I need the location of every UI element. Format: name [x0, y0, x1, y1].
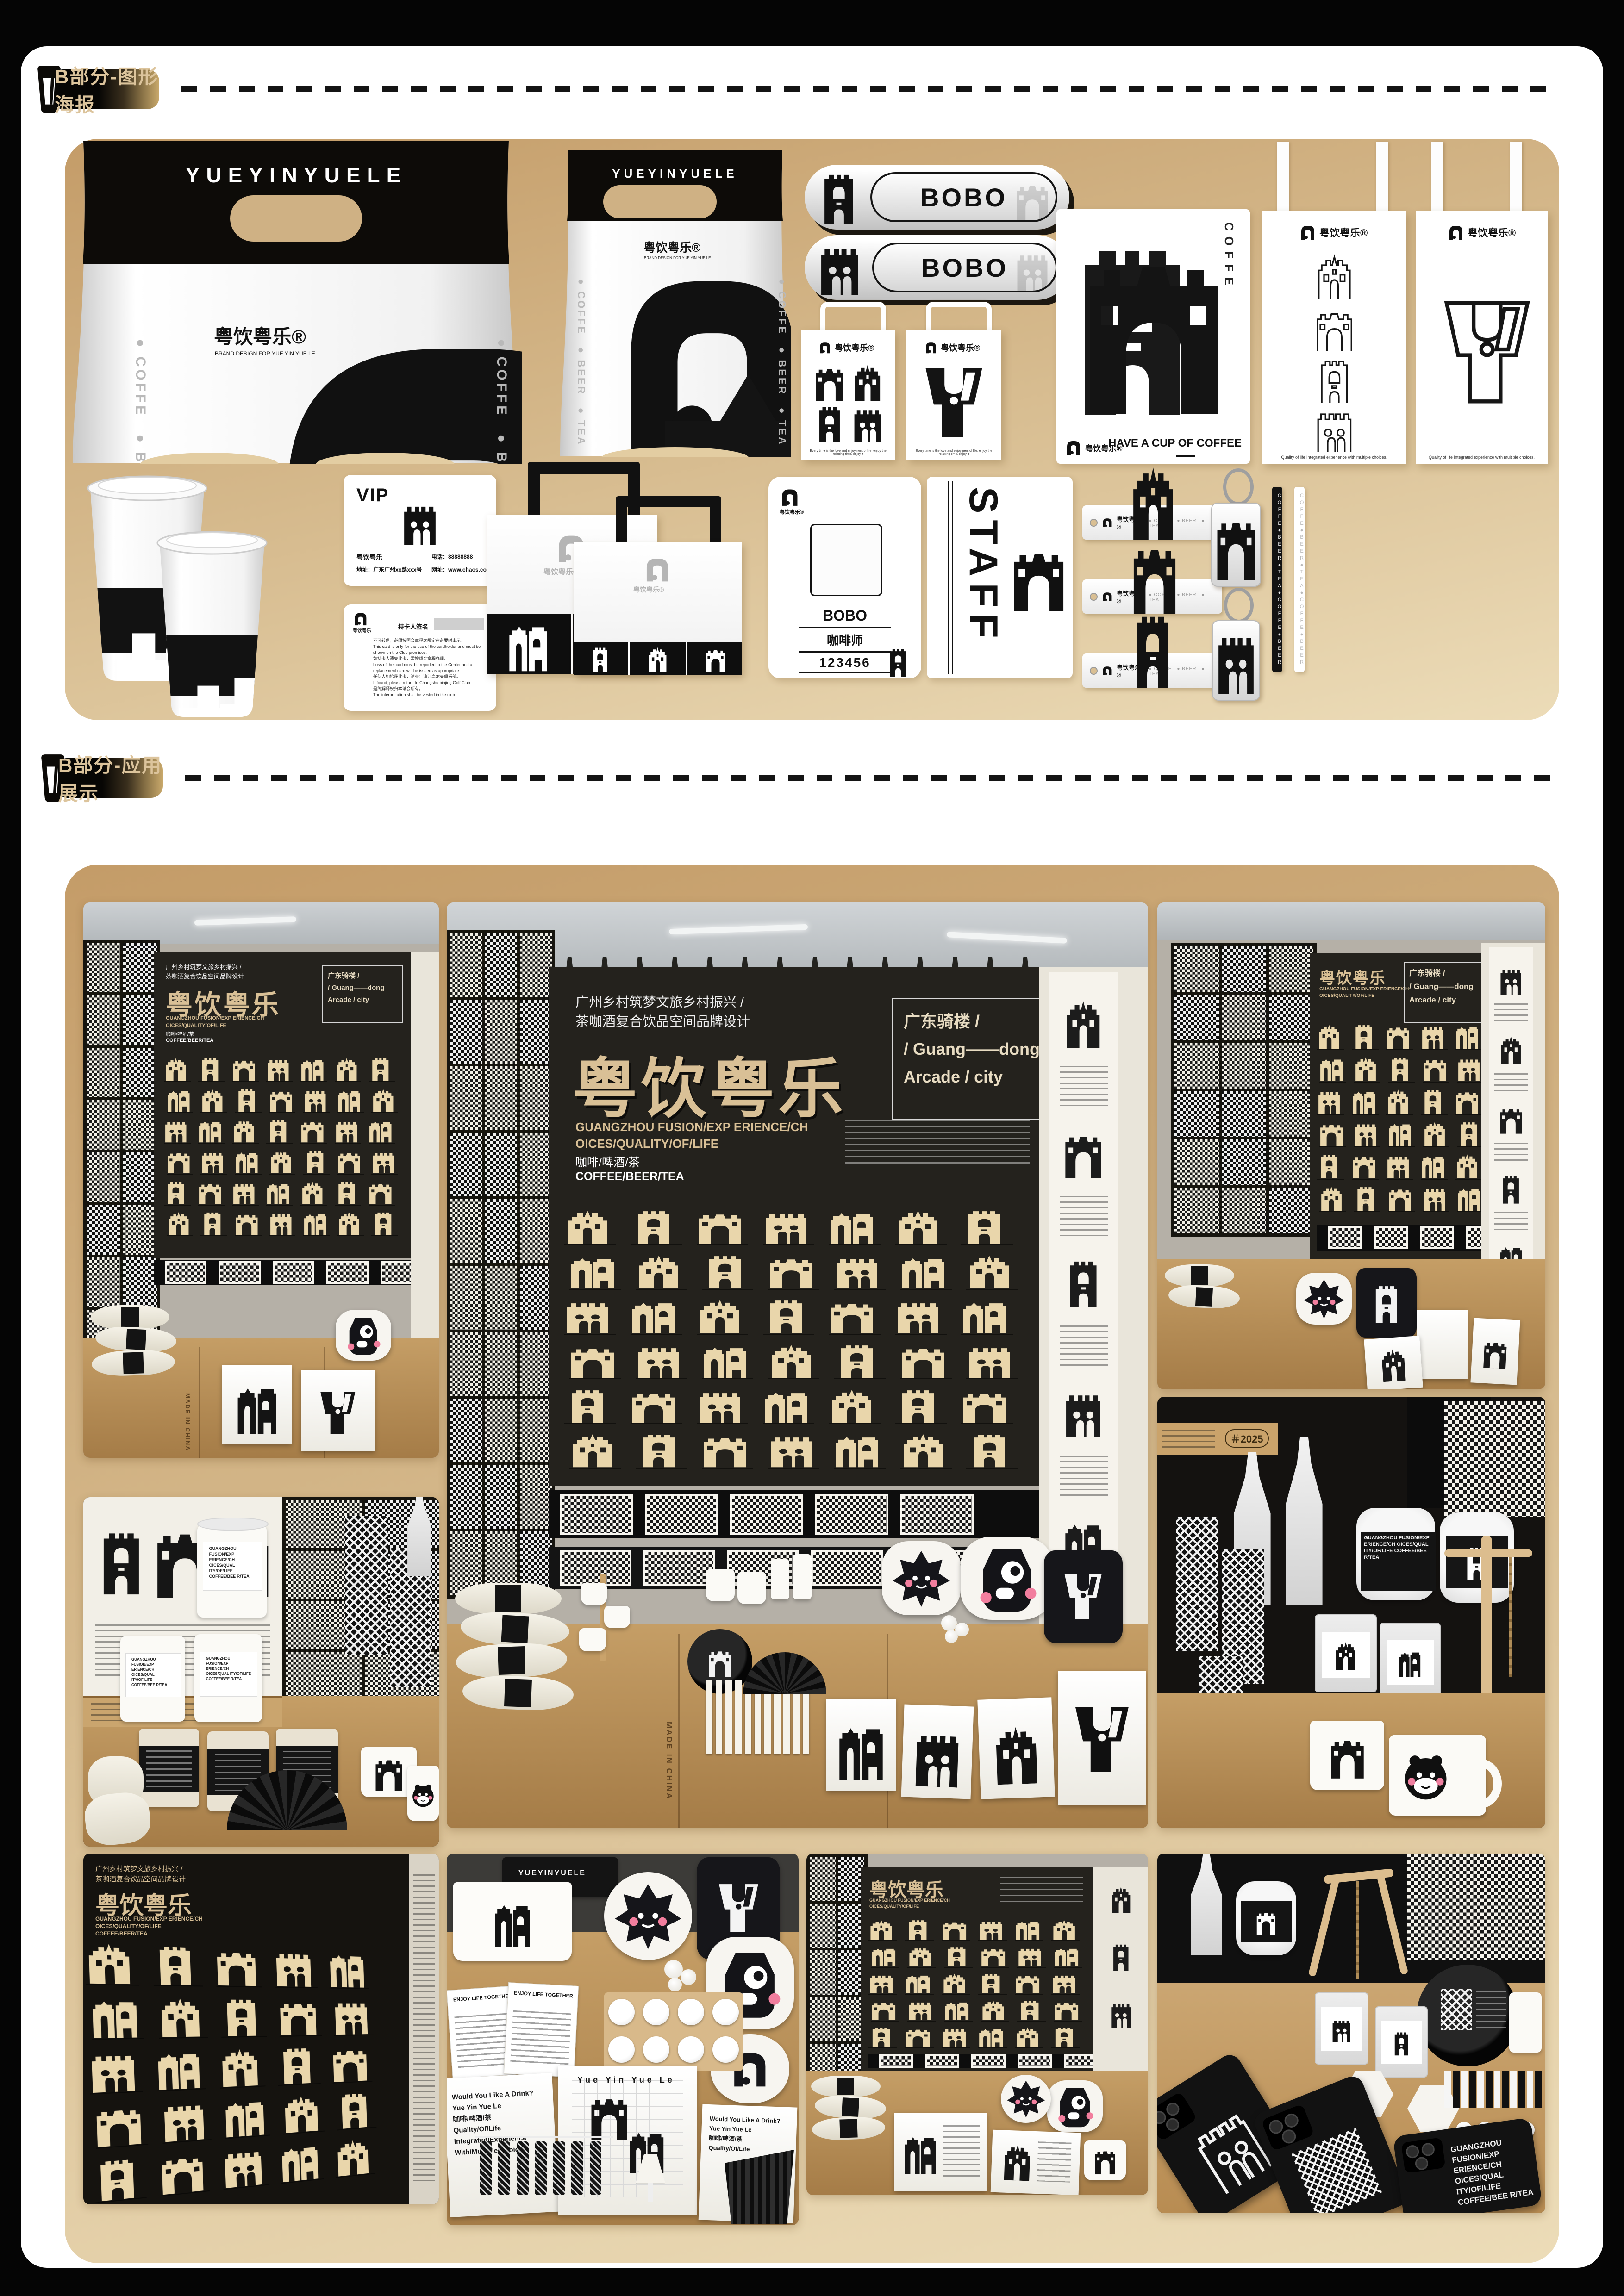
- straw-black: COFFE●BEER●TEA●COFFE●BEER: [1272, 487, 1282, 672]
- photo-booth-angle: 粤饮粤乐 GUANGZHOU FUSION/EXP ERIENCE/CH OIC…: [1157, 902, 1545, 1389]
- idcard-building-icon: [885, 646, 911, 677]
- carrier1-drinks-right: ● COFFE ● BEER ● TEA: [494, 339, 509, 464]
- wristband1-building: [1130, 461, 1177, 540]
- wristband1-logo-icon: [1102, 517, 1112, 528]
- phI-plate-lattice: [1441, 1989, 1472, 2030]
- coffee-card-underline: [1176, 455, 1195, 457]
- phC-cup1: [706, 1569, 735, 1601]
- photo-bottles-mugs: ＃2025 GUANGZHOU FUSION/EXP ERIENCE/CH OI…: [1157, 1397, 1545, 1828]
- phH-s3b: [839, 2119, 857, 2138]
- coffee-card-vline: [1230, 297, 1230, 413]
- phI-jar1: [1315, 1992, 1368, 2065]
- toteB-band-gap2: [686, 642, 687, 675]
- phD-pillow2: [1356, 1268, 1417, 1338]
- vip-term-7: 最终解释权归本球会所有。: [373, 686, 487, 692]
- phI-glyph-poster: [1407, 1854, 1545, 1960]
- phA-tote2: [301, 1370, 375, 1451]
- phB-cup-top-lid: [197, 1518, 269, 1531]
- phA-slipper2-band: [125, 1329, 146, 1350]
- phC-pillow1: [882, 1541, 961, 1615]
- vip-title: VIP: [356, 485, 389, 506]
- phE-kraft-tag: ＃2025: [1157, 1423, 1278, 1455]
- phI-bottle: [1185, 1854, 1228, 1955]
- bag1-stamp-1: [813, 362, 846, 401]
- vip-website: 网址：www.chaos.com: [431, 566, 492, 573]
- phD-slipper1: [1165, 1264, 1234, 1287]
- name-badge-pill-2: BOBO: [805, 235, 1069, 300]
- phD-banner-b1: [1497, 964, 1525, 995]
- staff-building-icon: [1011, 541, 1067, 611]
- phE-mug-bear: [1389, 1735, 1486, 1816]
- carrier2-drinks-right: ● COFFE ● BEER ● TEA: [776, 279, 788, 446]
- idcard-logo-text: 粤饮粤乐®: [780, 508, 804, 516]
- phH-f-b2: [1108, 1942, 1134, 1971]
- phC-banner-b3: [1064, 1253, 1103, 1311]
- bag4-handle-right: [1510, 142, 1522, 212]
- bag2-caption: Every time is the love and enjoyment of …: [911, 449, 997, 456]
- phA-title2: 茶咖酒复合饮品空间品牌设计: [166, 971, 244, 980]
- vip-term-5: 任何人如拾获此卡，请交：滨江高尔夫俱乐部。: [373, 674, 487, 680]
- phE-jar2: [1380, 1623, 1441, 1699]
- phA-slipper1-band: [121, 1307, 140, 1327]
- phC-mug1: [581, 1583, 607, 1605]
- bag3-stamp-2: [1312, 303, 1353, 351]
- phB-cup-mid1-sleeve: GUANGZHOU FUSION/EXP ERIENCE/CH OICES/QU…: [125, 1653, 181, 1697]
- phA-madein: MADE IN CHINA: [184, 1393, 191, 1451]
- phC-toteP1-print: [837, 1719, 885, 1780]
- phC-banner-t3: [1060, 1325, 1108, 1369]
- pill1-watermark: [1014, 178, 1051, 222]
- phB-cup-top-sleeve: GUANGZHOU FUSION/EXP ERIENCE/CH OICES/QU…: [203, 1542, 262, 1591]
- phC-poster-wall: [447, 930, 555, 1599]
- tote-bag-small: 粤饮粤乐®: [574, 542, 742, 675]
- phH-pillow1-face: [1053, 2084, 1097, 2128]
- phI-rack-leg2: [1377, 1874, 1409, 1975]
- phF-side-posters: [409, 1854, 439, 2204]
- keychain-2: [1212, 620, 1260, 701]
- dashed-rule-bottom: [185, 775, 1555, 781]
- phD-banner-b2: [1497, 1034, 1525, 1064]
- bag4-logo-text: 粤饮粤乐®: [1468, 225, 1516, 240]
- phC-plate-print: [707, 1646, 733, 1677]
- idcard-name: BOBO: [799, 607, 891, 628]
- phC-logotype: 粤饮粤乐: [573, 1037, 847, 1130]
- bag2-logo-icon: [925, 342, 937, 354]
- wristband2-hole: [1090, 593, 1098, 601]
- phC-toteP3: [977, 1697, 1055, 1799]
- phB-mug-bear-print: [409, 1777, 437, 1813]
- phC-toteY: [1058, 1671, 1146, 1805]
- bag1-stamp-4: [851, 404, 884, 442]
- phI-case3-cam: [1401, 2137, 1445, 2173]
- phI-case2-print: [1292, 2128, 1382, 2213]
- phI-jar2: [1375, 2006, 1428, 2078]
- phH-towel1: [894, 2113, 987, 2191]
- bag1-logo-text: 粤饮粤乐®: [835, 342, 874, 354]
- phH-mug: [1084, 2140, 1126, 2180]
- coffee-poster-card: COFFE 粤饮粤乐® HAVE A CUP OF COFFEE: [1056, 209, 1250, 464]
- bag3-caption: Quality of life Integrated experience wi…: [1268, 455, 1401, 460]
- idcard-role: 咖啡师: [799, 631, 891, 653]
- phE-jar1-label: [1322, 1632, 1370, 1678]
- phB-cup-mid1-label: GUANGZHOU FUSION/EXP ERIENCE/CH OICES/QU…: [131, 1657, 175, 1693]
- bag1-logo-icon: [819, 342, 831, 354]
- phD-pillow1-face: [1302, 1277, 1346, 1320]
- phC-boxline1: [678, 1634, 680, 1828]
- phC-en2: OICES/QUALITY/OF/LIFE: [575, 1137, 718, 1151]
- phF-title2: 茶咖酒复合饮品空间品牌设计: [95, 1874, 186, 1884]
- phC-title1: 广州乡村筑梦文旅乡村振兴 /: [575, 991, 744, 1011]
- work-id-card: 粤饮粤乐® BOBO 咖啡师 123456: [768, 477, 921, 678]
- keychain1-building: [1216, 510, 1256, 580]
- phC-pillow3: [1044, 1550, 1123, 1643]
- phC-banner-t4: [1060, 1456, 1108, 1499]
- phC-s1b: [495, 1585, 521, 1612]
- phH-f-b3: [1108, 1999, 1134, 2028]
- phD-banner-b3: [1497, 1103, 1525, 1134]
- cup-carrier-large: YUEYINYUELE 粤饮粤乐® BRAND DESIGN FOR YUE Y…: [70, 140, 522, 464]
- photo-booth-overview: 粤饮粤乐 GUANGZHOU FUSION/EXP ERIENCE/CH OIC…: [806, 1854, 1148, 2195]
- phG-lamp: [632, 2154, 669, 2210]
- phG-vip-tag-rack: [475, 2131, 613, 2205]
- phC-banner-b1: [1064, 994, 1103, 1052]
- phE-mug-castle: [1310, 1721, 1384, 1790]
- vipback-logo-icon: [354, 612, 368, 626]
- phD-arcade-1: 广东骑楼 /: [1409, 966, 1483, 980]
- phB-bookmark1: [345, 1516, 388, 1655]
- phC-arcade-1: 广东骑楼 /: [904, 1008, 1043, 1035]
- pill1-building-icon: [817, 170, 861, 224]
- phA-ceiling: [83, 902, 439, 944]
- phI-rack-leg1: [1308, 1876, 1340, 1977]
- idcard-photo-window: [810, 524, 882, 596]
- phE-jar2-label: [1387, 1640, 1434, 1685]
- phB-cupB1: [139, 1729, 199, 1807]
- pill1-plate: BOBO: [870, 172, 1057, 222]
- toteB-band-2: [632, 642, 684, 675]
- phC-toteP1: [826, 1699, 896, 1791]
- bag4-logo: 粤饮粤乐®: [1448, 224, 1516, 240]
- phC-title2: 茶咖酒复合饮品空间品牌设计: [575, 1011, 750, 1030]
- carrier2-logo-sub: BRAND DESIGN FOR YUE YIN YUE LE: [644, 256, 711, 260]
- phG-cotton2: [681, 1969, 696, 1985]
- photo-booth-wide: 广州乡村筑梦文旅乡村振兴 / 茶咖酒复合饮品空间品牌设计 粤饮粤乐 GUANGZ…: [83, 902, 439, 1458]
- phA-woodgrid: [163, 1056, 402, 1241]
- phH-towel2: [991, 2130, 1081, 2195]
- phH-towel1-print: [904, 2124, 937, 2180]
- phC-cn-drinks: 咖啡/啤酒/茶: [575, 1153, 640, 1170]
- phD-arcade-box: 广东骑楼 / / Guang——dong Arcade / city: [1404, 962, 1489, 1023]
- phA-tote1: [222, 1365, 292, 1444]
- phH-woodgrid: [868, 1918, 1087, 2053]
- phC-cotton1: [941, 1615, 957, 1631]
- bag-outlined-y: 粤饮粤乐® Quality of life Integrated experie…: [1416, 211, 1548, 464]
- phE-bottle2: [1279, 1437, 1330, 1605]
- staff-line-2: [952, 481, 953, 674]
- phC-cup2: [737, 1572, 766, 1604]
- portfolio-board: B部分-图形海报 YUEYINYUELE 粤饮粤乐® BRAND DESIGN …: [0, 0, 1624, 2296]
- phC-madein: MADE IN CHINA: [664, 1722, 674, 1800]
- phB-mug-bear: [407, 1766, 439, 1821]
- phB-cup-mid2-label: GUANGZHOU FUSION/EXP ERIENCE/CH OICES/QU…: [206, 1656, 251, 1693]
- phC-candle2: [793, 1554, 812, 1599]
- phG-crossword-word: Yue Yin Yue Le: [577, 2075, 675, 2085]
- idcard-number: 123456: [799, 655, 891, 673]
- cup-small: [150, 532, 294, 720]
- phF-woodgrid: [83, 1940, 386, 2204]
- coffee-card-slogan: HAVE A CUP OF COFFEE: [1108, 437, 1242, 450]
- phG-pillow-star-face: [612, 1878, 684, 1954]
- phA-slipper3-band: [123, 1352, 144, 1374]
- phA-pillow-face: [342, 1315, 384, 1356]
- phG-lamp-shade: [636, 2154, 665, 2183]
- phG-notebook2-art: [510, 2010, 571, 2068]
- bag2-y-monogram: [920, 366, 987, 440]
- bag2-logo-text: 粤饮粤乐®: [941, 342, 980, 354]
- photo-woodwall-angle: 广州乡村筑梦文旅乡村振兴 / 茶咖酒复合饮品空间品牌设计 粤饮粤乐 GUANGZ…: [83, 1854, 439, 2204]
- cup-carrier-small: YUEYINYUELE 粤饮粤乐® BRAND DESIGN FOR YUE Y…: [559, 149, 791, 457]
- phB-cup-mid1: GUANGZHOU FUSION/EXP ERIENCE/CH OICES/QU…: [120, 1636, 185, 1722]
- toteB-logo-icon: [644, 556, 670, 582]
- phA-arcade-1: 广东骑楼 /: [328, 970, 397, 982]
- bag3-logo-text: 粤饮粤乐®: [1319, 225, 1368, 240]
- vip-terms: 不可转借，必须按照会章程之规定在必要时出示。 This card is only…: [373, 638, 487, 698]
- phC-banner-t1: [1060, 1066, 1108, 1109]
- phC-slipper1: [455, 1583, 562, 1614]
- carrier1-brand: YUEYINYUELE: [186, 163, 407, 187]
- phG-tote2-lines: Would You Like A Drink? Yue Yin Yue Le 咖…: [708, 2114, 781, 2155]
- phH-glyphstrip: [868, 2054, 1109, 2068]
- coffee-card-building: [1084, 230, 1223, 417]
- vip-card-back: 粤饮粤乐 持卡人签名 不可转借，必须按照会章程之规定在必要时出示。 This c…: [344, 604, 496, 711]
- phI-twine: [1356, 1881, 1359, 1979]
- phC-s3b: [498, 1646, 525, 1675]
- phE-mug-castle-print: [1330, 1728, 1365, 1783]
- phD-logotype: 粤饮粤乐: [1319, 965, 1386, 988]
- phD-ceiling: [1157, 902, 1545, 940]
- phH-s2b: [841, 2097, 859, 2117]
- pill2-building-icon: [817, 240, 863, 295]
- carrier1-handle-hole: [230, 195, 362, 242]
- phH-para: [1000, 1877, 1083, 1904]
- phE-rack-bar: [1444, 1549, 1532, 1557]
- phH-towel2-text: [1037, 2141, 1071, 2183]
- phG-notebook2: ENJOY LIFE TOGETHER: [504, 1982, 579, 2078]
- photo-pillows-merch: YUEYINYUELE ENJOY LIFE TOGETHER ENJOY LI…: [447, 1854, 799, 2225]
- phD-bag3: [1364, 1336, 1423, 1389]
- phF-en1: GUANGZHOU FUSION/EXP ERIENCE/CH: [95, 1916, 203, 1922]
- phH-en1: GUANGZHOU FUSION/EXP ERIENCE/CH: [869, 1898, 950, 1903]
- phC-woodgrid: [562, 1208, 1025, 1476]
- bag3-stamp-4: [1312, 404, 1353, 452]
- phC-en-drinks: COFFEE/BEER/TEA: [575, 1170, 684, 1183]
- toteB-logo-text: 粤饮粤乐®: [633, 585, 664, 594]
- phF-side-lines: [413, 1874, 436, 2183]
- phD-arcade-2: / Guang——dong: [1409, 980, 1483, 993]
- pill2-watermark: [1014, 248, 1051, 292]
- phE-mug-handle: [1459, 1759, 1502, 1808]
- phA-pillow: [336, 1310, 391, 1361]
- phH-board: 粤饮粤乐 GUANGZHOU FUSION/EXP ERIENCE/CH OIC…: [861, 1867, 1093, 2071]
- phB-cup-mid2: GUANGZHOU FUSION/EXP ERIENCE/CH OICES/QU…: [194, 1634, 262, 1722]
- bag4-handle-left: [1431, 142, 1443, 212]
- phB-cup-top: GUANGZHOU FUSION/EXP ERIENCE/CH OICES/QU…: [197, 1525, 267, 1618]
- toteB-band-3: [689, 642, 742, 675]
- phA-arcade-2: / Guang——dong: [328, 982, 397, 994]
- carrier1-drinks-left: ● COFFE ● BEER ● TEA: [133, 339, 148, 464]
- bag4-caption: Quality of life Integrated experience wi…: [1420, 455, 1543, 460]
- section-badge-apps: B部分-应用展示: [58, 758, 163, 798]
- vipback-logo-text: 粤饮粤乐: [353, 627, 371, 634]
- phC-mug3: [579, 1628, 606, 1651]
- phB-cup-mid2-sleeve: GUANGZHOU FUSION/EXP ERIENCE/CH OICES/QU…: [200, 1652, 258, 1697]
- phD-banner-t4: [1494, 1212, 1528, 1234]
- phC-mug2: [604, 1606, 630, 1628]
- phD-bag2: [1470, 1318, 1520, 1385]
- bag3-handle-right: [1376, 142, 1388, 212]
- small-bag-stamps: 粤饮粤乐® Every time is the love and enjoyme…: [801, 330, 895, 460]
- phA-arcade-3: Arcade / city: [328, 994, 397, 1006]
- bag1-stamp-3: [813, 404, 846, 442]
- vip-building-icon: [400, 499, 440, 545]
- bag-outlined-stamps: 粤饮粤乐® Quality of life Integrated experie…: [1262, 211, 1406, 464]
- vip-address: 地址：广东广州xx路xxx号: [356, 566, 422, 573]
- toteB-band: [574, 642, 742, 675]
- phB-cup-top-label: GUANGZHOU FUSION/EXP ERIENCE/CH OICES/QU…: [209, 1546, 256, 1586]
- keychain2-ring: [1224, 588, 1254, 623]
- phC-glyphstrip1: [549, 1490, 1062, 1538]
- bag3-logo-icon: [1300, 224, 1316, 240]
- bag3-logo: 粤饮粤乐®: [1300, 224, 1368, 240]
- pill2-name: BOBO: [921, 253, 1008, 283]
- phG-pin-board: [604, 1992, 743, 2071]
- phI-case2-cam: [1261, 2104, 1315, 2152]
- phH-en2: OICES/QUALITY/OF/LIFE: [869, 1904, 919, 1909]
- toteA-band-gap: [571, 614, 573, 674]
- phC-board: 广州乡村筑梦文旅乡村振兴 / 茶咖酒复合饮品空间品牌设计 粤饮粤乐 GUANGZ…: [549, 967, 1039, 1486]
- keychain2-building: [1216, 627, 1256, 694]
- phI-cylinder: [1509, 1992, 1542, 2053]
- phD-pillow2-print: [1371, 1278, 1402, 1328]
- staff-line-1: [948, 481, 949, 674]
- phC-candle1: [771, 1559, 789, 1599]
- vip-term-4: Loss of the card must be reported to the…: [373, 662, 487, 674]
- phG-carrier-white: [453, 1882, 572, 1961]
- phA-tote2-print: [317, 1383, 359, 1443]
- phA-title1: 广州乡村筑梦文旅乡村振兴 /: [166, 963, 241, 971]
- vip-term-2: This card is only for the use of the car…: [373, 644, 487, 656]
- phB-pl-b1: [95, 1517, 147, 1605]
- phC-pillow1-face: [890, 1547, 953, 1609]
- photo-booth-main: 广州乡村筑梦文旅乡村振兴 / 茶咖酒复合饮品空间品牌设计 粤饮粤乐 GUANGZ…: [447, 902, 1148, 1828]
- carrier2-logo-cn: 粤饮粤乐®: [643, 241, 700, 255]
- phG-lamp-stem: [648, 2183, 653, 2202]
- phI-plate: [1417, 1965, 1518, 2066]
- phC-arcade-2: / Guang——dong: [904, 1035, 1043, 1063]
- toteB-band-gap1: [628, 642, 630, 675]
- phA-en1: GUANGZHOU FUSION/EXP ERIENCE/CH: [166, 1015, 264, 1021]
- phA-en-drinks: COFFEE/BEER/TEA: [166, 1038, 213, 1043]
- vip-term-8: The interpretation shall be vested in th…: [373, 692, 487, 698]
- phC-s4b: [504, 1679, 532, 1707]
- bag1-logo: 粤饮粤乐®: [819, 342, 874, 354]
- paper-cups: [81, 470, 294, 720]
- phB-mug-castle-print: [375, 1753, 403, 1791]
- phC-banner-t2: [1060, 1196, 1108, 1239]
- vip-term-6: If found, please return to Changshu binj…: [373, 680, 487, 686]
- phC-pillow2-face: [970, 1543, 1044, 1613]
- photo-cases-jars: GUANGZHOU FUSION/EXP ERIENCE/CH OICES/QU…: [1157, 1854, 1545, 2213]
- bag1-caption: Every time is the love and enjoyment of …: [806, 449, 890, 456]
- vip-term-1: 不可转借，必须按照会章程之规定在必要时出示。: [373, 638, 487, 644]
- phG-cotton3: [668, 1978, 682, 1991]
- phC-pillow3-print: [1061, 1563, 1105, 1630]
- section-badge-apps-label: B部分-应用展示: [58, 750, 163, 806]
- wristband2-building: [1132, 535, 1177, 614]
- phD-en2: OICES/QUALITY/OF/LIFE: [1319, 993, 1374, 998]
- phC-toteP2-print: [912, 1725, 962, 1787]
- phF-en3: COFFEE/BEER/TEA: [95, 1930, 148, 1937]
- phE-flask1: GUANGZHOU FUSION/EXP ERIENCE/CH OICES/QU…: [1356, 1508, 1435, 1600]
- phA-boxline1: [199, 1347, 200, 1458]
- staff-label: STAFF: [960, 487, 1006, 645]
- staff-tag: STAFF: [927, 477, 1073, 678]
- bag1-stamp-2: [851, 362, 884, 401]
- phC-banner-b4: [1064, 1383, 1103, 1441]
- section-badge-posters-label: B部分-图形海报: [55, 61, 159, 118]
- phH-pillow1: [1047, 2080, 1103, 2132]
- name-badge-pill-1: BOBO: [805, 165, 1069, 230]
- wristband2-logo-icon: [1102, 591, 1112, 602]
- phD-arcade-3: Arcade / city: [1409, 993, 1483, 1007]
- bag4-logo-icon: [1448, 224, 1464, 240]
- idcard-logo-icon: [781, 488, 799, 506]
- phC-s2b: [501, 1615, 529, 1643]
- phD-s1b: [1191, 1266, 1208, 1285]
- phA-poster-wall: [83, 940, 160, 1363]
- phD-woodgrid: [1317, 1023, 1489, 1217]
- phC-cotton3: [945, 1630, 958, 1643]
- phA-arcade-box: 广东骑楼 / / Guang——dong Arcade / city: [322, 965, 403, 1023]
- phI-plate-text: [1476, 1991, 1506, 2032]
- small-bag-ymark: 粤饮粤乐® Every time is the love and enjoyme…: [906, 330, 1001, 460]
- carrier2-drinks-left: ● COFFE ● BEER ● TEA: [575, 279, 587, 446]
- phH-f-b1: [1108, 1885, 1134, 1913]
- pill2-plate: BOBO: [872, 243, 1057, 292]
- carrier1-logo-sub: BRAND DESIGN FOR YUE YIN YUE LE: [215, 350, 315, 357]
- toteA-logo-text: 粤饮粤乐®: [543, 566, 579, 577]
- phA-slipper1: [91, 1305, 169, 1329]
- phG-carrier-brand: YUEYINYUELE: [518, 1869, 586, 1878]
- phB-cupB1-lines: [146, 1750, 192, 1787]
- phD-pillow1: [1296, 1273, 1352, 1325]
- phG-carrier-print: [493, 1895, 531, 1950]
- phG-t2l4: Quality/Of/Life: [708, 2143, 780, 2155]
- phH-poster-wall: [806, 1854, 868, 2091]
- keychain1-ring: [1223, 468, 1254, 505]
- phH-towel1-text: [943, 2125, 980, 2177]
- phG-pillow-black-print: [715, 1869, 762, 1947]
- phC-toteY-print: [1070, 1690, 1134, 1789]
- phD-board: 粤饮粤乐 GUANGZHOU FUSION/EXP ERIENCE/CH OIC…: [1310, 953, 1495, 1259]
- phI-jar1-label: [1321, 2007, 1362, 2051]
- phA-board: 广州乡村筑梦文旅乡村振兴 / 茶咖酒复合饮品空间品牌设计 粤饮粤乐 GUANGZ…: [154, 952, 411, 1258]
- phI-coaster-row: [1444, 2071, 1542, 2108]
- phC-toteP3-print: [992, 1717, 1042, 1789]
- pill1-name: BOBO: [920, 182, 1007, 212]
- phH-towel2-print: [1001, 2138, 1033, 2185]
- phE-flask2-label: [1446, 1536, 1508, 1588]
